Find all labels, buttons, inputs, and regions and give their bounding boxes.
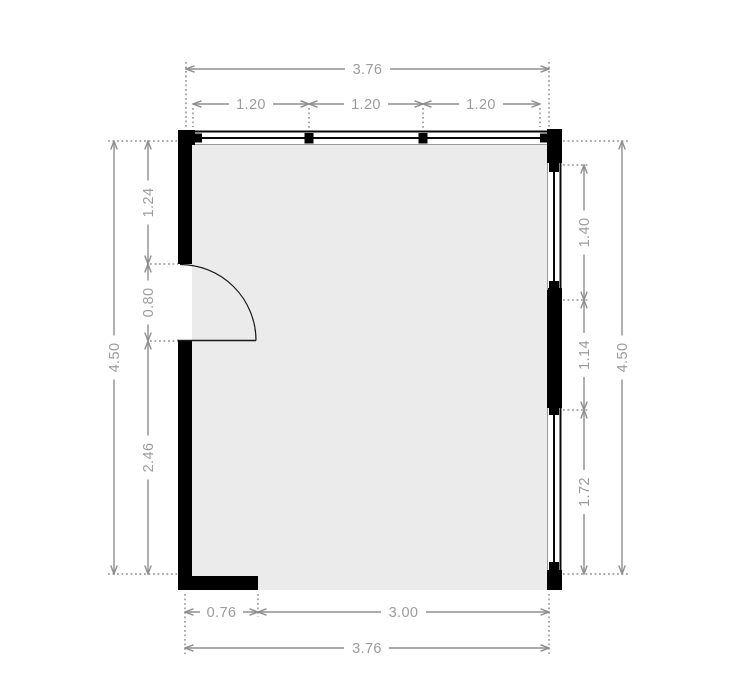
wall-corner-top-left[interactable] (178, 130, 195, 145)
floor-plan-canvas: 3.76 1.20 1.20 1.20 0.76 3.00 3.76 (0, 0, 737, 696)
dim-label-bottom-wall: 0.76 (207, 605, 237, 621)
dim-label-right-overall-group: 4.50 (613, 336, 631, 380)
dim-label-left-1: 1.24 (141, 188, 157, 218)
window-mullion (305, 133, 314, 144)
wall-left-upper[interactable] (178, 130, 192, 264)
dim-label-right-2-group: 1.14 (575, 333, 593, 377)
wall-left-lower[interactable] (178, 341, 192, 590)
window-end-tick (540, 134, 547, 143)
dim-label-left-3: 2.46 (141, 443, 157, 473)
dim-label-left-3-group: 2.46 (139, 436, 157, 480)
wall-right-middle[interactable] (547, 288, 562, 408)
dim-label-left-overall-group: 4.50 (105, 336, 123, 380)
wall-corner-top-right[interactable] (547, 129, 562, 163)
dim-label-bottom-opening: 3.00 (389, 605, 419, 621)
dim-label-window-2: 1.20 (351, 97, 381, 113)
floor-plan-drawing: 3.76 1.20 1.20 1.20 0.76 3.00 3.76 (0, 0, 737, 696)
dim-label-right-1: 1.40 (577, 218, 593, 248)
wall-bottom-segment[interactable] (178, 576, 258, 590)
window-end-tick (549, 406, 559, 415)
dimensions-right: 1.40 1.14 1.72 4.50 (563, 141, 631, 574)
dim-label-window-1: 1.20 (236, 97, 266, 113)
wall-corner-bottom-right[interactable] (547, 570, 562, 590)
window-end-tick (549, 163, 559, 172)
dim-label-right-3-group: 1.72 (575, 470, 593, 514)
dim-label-left-2-group: 0.80 (139, 281, 157, 325)
dimensions-bottom: 0.76 3.00 3.76 (185, 594, 549, 657)
dim-label-window-3: 1.20 (466, 97, 496, 113)
dim-label-left-overall: 4.50 (107, 343, 123, 373)
dim-label-top-overall: 3.76 (353, 62, 383, 78)
top-windows[interactable] (195, 132, 547, 145)
room-floor[interactable] (192, 145, 547, 590)
window-end-tick (549, 562, 559, 571)
window-end-tick (195, 134, 202, 143)
dim-label-right-overall: 4.50 (615, 343, 631, 373)
dimensions-top: 3.76 1.20 1.20 1.20 (186, 60, 549, 130)
dim-label-left-2: 0.80 (141, 288, 157, 318)
dim-label-right-2: 1.14 (577, 340, 593, 370)
window-end-tick (549, 281, 559, 290)
dim-label-bottom-overall: 3.76 (352, 641, 382, 657)
dimensions-left: 1.24 0.80 2.46 4.50 (105, 141, 178, 574)
dim-label-right-3: 1.72 (577, 477, 593, 507)
window-mullion (419, 133, 428, 144)
dim-label-left-1-group: 1.24 (139, 181, 157, 225)
dim-label-right-1-group: 1.40 (575, 211, 593, 255)
